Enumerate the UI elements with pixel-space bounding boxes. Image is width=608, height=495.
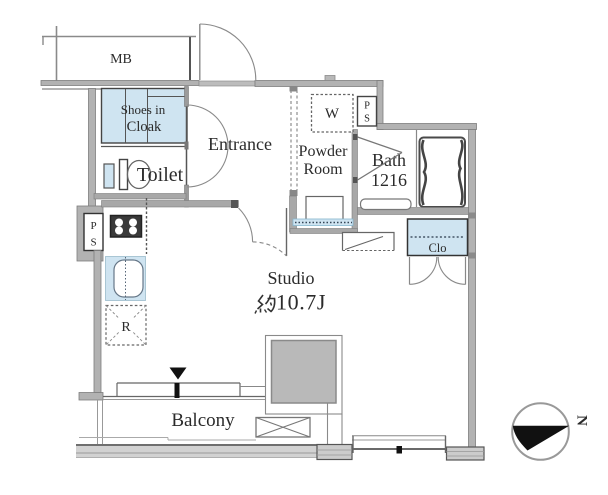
svg-text:N: N (574, 415, 590, 426)
svg-text:Entrance: Entrance (208, 134, 272, 154)
svg-text:Studio: Studio (267, 268, 314, 288)
svg-text:P: P (364, 101, 370, 112)
svg-text:P: P (90, 220, 96, 232)
svg-text:S: S (364, 114, 370, 125)
svg-text:1216: 1216 (371, 170, 407, 190)
svg-text:Cloak: Cloak (127, 119, 162, 135)
svg-text:W: W (325, 106, 340, 122)
svg-text:MB: MB (110, 52, 132, 67)
svg-text:Room: Room (303, 161, 343, 178)
svg-text:Clo: Clo (428, 241, 446, 255)
svg-text:Shoes in: Shoes in (121, 102, 166, 117)
svg-text:Toilet: Toilet (137, 164, 184, 186)
svg-text:Powder: Powder (299, 143, 349, 160)
svg-text:S: S (90, 237, 96, 249)
svg-text:Balcony: Balcony (171, 410, 235, 431)
svg-text:10.7J: 10.7J (276, 290, 326, 315)
svg-text:R: R (121, 320, 131, 335)
